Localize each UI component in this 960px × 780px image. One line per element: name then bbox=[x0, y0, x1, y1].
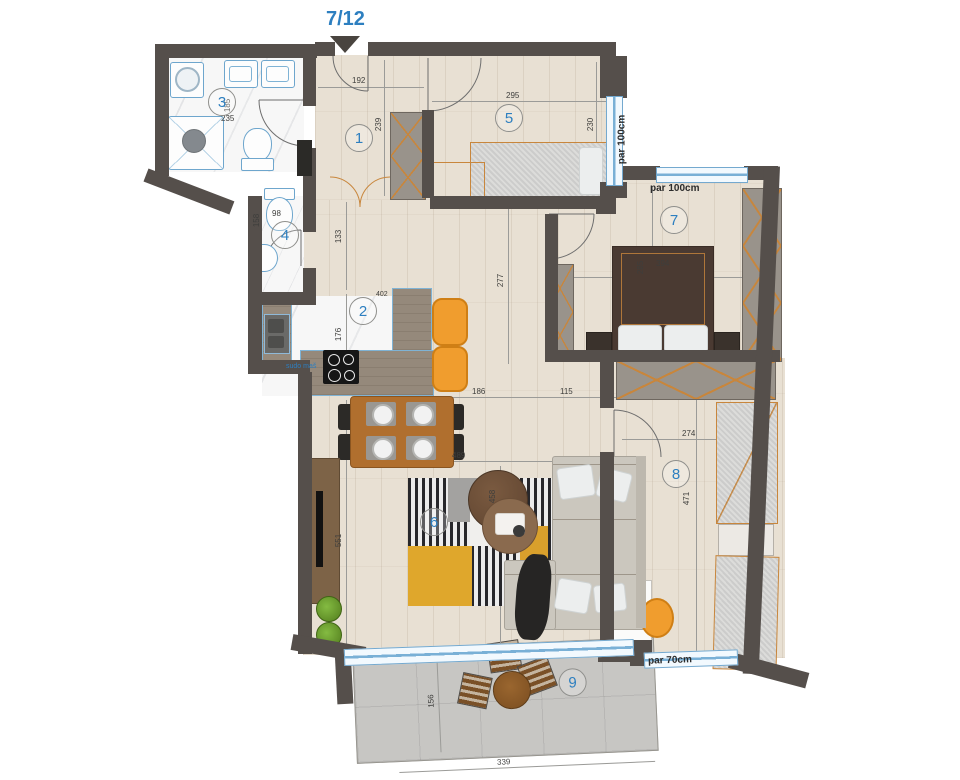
pillow bbox=[664, 325, 708, 353]
dim-176: 176 bbox=[334, 328, 343, 341]
room-number-5-text: 5 bbox=[505, 110, 513, 127]
toilet-bathroom bbox=[243, 128, 272, 162]
toilet-bathroom-tank bbox=[241, 158, 274, 171]
wall bbox=[303, 196, 316, 232]
dim-239: 239 bbox=[374, 118, 383, 131]
room-number-4-text: 4 bbox=[281, 227, 289, 244]
wall bbox=[368, 42, 616, 56]
bar-stool-bottom bbox=[432, 346, 468, 392]
entrance-arrow-icon bbox=[330, 36, 360, 53]
dim-274: 274 bbox=[682, 429, 695, 438]
cooktop bbox=[323, 350, 359, 384]
wall bbox=[600, 56, 627, 98]
room-number-7: 7 bbox=[660, 206, 688, 234]
bath-sink-left bbox=[224, 60, 258, 88]
room-number-2: 2 bbox=[349, 297, 377, 325]
room-number-2-text: 2 bbox=[359, 303, 367, 320]
kitchen-counter-bottom bbox=[300, 350, 434, 396]
wardrobe-room5 bbox=[390, 112, 426, 200]
dim-186: 186 bbox=[472, 387, 485, 396]
wall bbox=[430, 196, 616, 209]
nightstand-room8 bbox=[718, 524, 774, 556]
bed-room5 bbox=[470, 142, 608, 200]
tv-sideboard bbox=[310, 458, 340, 604]
wall bbox=[155, 44, 317, 58]
pillow bbox=[556, 464, 596, 501]
dim-394: 394 bbox=[656, 259, 669, 268]
plant bbox=[316, 596, 342, 622]
dishwasher-label: sudo maš bbox=[286, 363, 316, 370]
bar-stool-top bbox=[432, 298, 468, 346]
room-number-7-text: 7 bbox=[670, 212, 678, 229]
dim-277: 277 bbox=[496, 274, 505, 287]
dim-133: 133 bbox=[334, 230, 343, 243]
room-number-1-text: 1 bbox=[355, 130, 363, 147]
coffee-table-small bbox=[482, 498, 538, 554]
dim-98: 98 bbox=[272, 209, 281, 218]
room-number-3-text: 3 bbox=[218, 94, 226, 111]
sofa-back bbox=[636, 456, 646, 628]
dim-551: 551 bbox=[334, 534, 343, 547]
room-number-8-text: 8 bbox=[672, 466, 680, 483]
dim-192: 192 bbox=[352, 76, 365, 85]
dim-295: 295 bbox=[506, 91, 519, 100]
wall bbox=[596, 200, 616, 214]
room-number-1: 1 bbox=[345, 124, 373, 152]
shower bbox=[168, 116, 224, 170]
wardrobe-band-room8 bbox=[616, 360, 776, 400]
dim-471: 471 bbox=[682, 492, 691, 505]
rug-patch-yellow bbox=[408, 546, 472, 606]
dim-489: 489 bbox=[452, 451, 465, 460]
sink-bowl-bottom bbox=[268, 336, 284, 348]
window-label-room7: par 100cm bbox=[650, 183, 699, 194]
tray-item bbox=[513, 525, 525, 537]
room-number-8: 8 bbox=[662, 460, 690, 488]
room-number-3: 3 bbox=[208, 88, 236, 116]
window-label-room8: par 70cm bbox=[648, 654, 692, 667]
wall bbox=[545, 214, 558, 354]
dim-158: 158 bbox=[252, 214, 261, 227]
floor-plan: 7/12 192 239 295 230 185 235 158 98 133 … bbox=[0, 0, 960, 780]
wall bbox=[422, 110, 434, 198]
radiator bbox=[297, 140, 312, 176]
plate bbox=[412, 438, 434, 460]
sink-basin bbox=[229, 66, 252, 82]
room-number-4: 4 bbox=[271, 221, 299, 249]
dim-285: 285 bbox=[636, 261, 645, 274]
dim-458: 458 bbox=[488, 490, 497, 503]
sink-basin bbox=[266, 66, 289, 82]
washing-machine bbox=[170, 62, 204, 98]
plan-title: 7/12 bbox=[326, 8, 365, 31]
plate bbox=[412, 404, 434, 426]
wall bbox=[303, 268, 316, 298]
plate bbox=[372, 404, 394, 426]
room-number-6-text: 6 bbox=[430, 514, 438, 531]
wall bbox=[600, 452, 614, 652]
room-number-5: 5 bbox=[495, 104, 523, 132]
wall bbox=[545, 350, 780, 362]
room-number-6: 6 bbox=[420, 508, 448, 536]
kitchen-sink bbox=[264, 314, 290, 354]
wall bbox=[155, 44, 169, 176]
window-label-room5: par 100cm bbox=[617, 110, 628, 170]
dim-230: 230 bbox=[586, 118, 595, 131]
bath-sink-right bbox=[261, 60, 295, 88]
window-room7-top bbox=[656, 167, 748, 183]
tv bbox=[316, 491, 323, 567]
dim-115: 115 bbox=[560, 387, 573, 396]
pillow bbox=[553, 577, 592, 614]
dim-402: 402 bbox=[376, 290, 388, 299]
wall bbox=[600, 362, 614, 408]
sink-bowl-top bbox=[268, 319, 284, 333]
shelf-room5 bbox=[433, 162, 485, 198]
washing-machine-drum bbox=[175, 67, 200, 92]
shower-head bbox=[182, 129, 206, 153]
wall bbox=[298, 372, 312, 654]
plate bbox=[372, 438, 394, 460]
pillow bbox=[618, 325, 662, 353]
